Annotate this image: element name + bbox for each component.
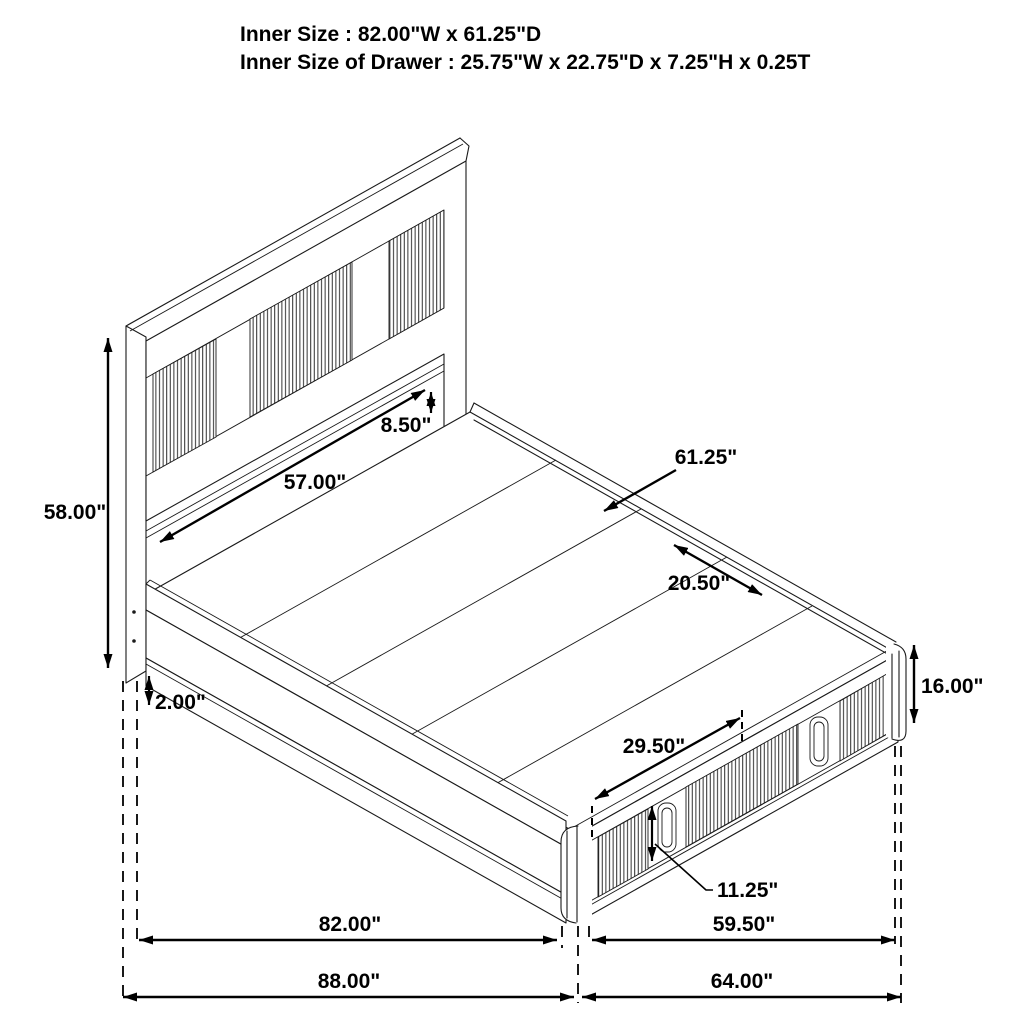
dim-label-overall-width: 88.00" bbox=[318, 970, 381, 993]
bed-dimension-diagram: 58.00" 57.00" 8.50" 61.25" 20.50" 2.00" … bbox=[0, 0, 1024, 1024]
dim-platform-depth-arrow bbox=[604, 470, 676, 511]
dim-label-platform-width: 82.00" bbox=[319, 913, 382, 936]
dim-label-base-clearance: 2.00" bbox=[155, 691, 206, 714]
bed-dimension-diagram-page: 58.00" 57.00" 8.50" 61.25" 20.50" 2.00" … bbox=[0, 0, 1024, 1024]
headboard-left-leg bbox=[126, 326, 146, 683]
title-line-2: Inner Size of Drawer : 25.75"W x 22.75"D… bbox=[240, 51, 810, 74]
leg-screw-hole bbox=[132, 639, 136, 643]
dim-label-storage-height: 16.00" bbox=[921, 675, 984, 698]
dim-label-deck-inset: 20.50" bbox=[668, 572, 731, 595]
dim-label-drawer-front-height: 11.25" bbox=[717, 879, 778, 902]
dim-label-headboard-width: 57.00" bbox=[284, 471, 347, 494]
leg-screw-hole bbox=[132, 610, 136, 614]
dim-label-platform-depth: 61.25" bbox=[675, 446, 738, 469]
corner-post-right-fill bbox=[886, 644, 906, 740]
headboard-cap-peak bbox=[460, 138, 469, 161]
dim-label-clearance: 8.50" bbox=[381, 414, 432, 437]
dim-label-footboard-span: 59.50" bbox=[713, 913, 776, 936]
dim-label-headboard-height: 58.00" bbox=[44, 501, 107, 524]
dim-label-overall-depth: 64.00" bbox=[711, 970, 774, 993]
title-block: Inner Size : 82.00"W x 61.25"D Inner Siz… bbox=[240, 23, 810, 74]
title-line-1: Inner Size : 82.00"W x 61.25"D bbox=[240, 23, 541, 46]
dim-label-drawer-width: 29.50" bbox=[623, 735, 686, 758]
